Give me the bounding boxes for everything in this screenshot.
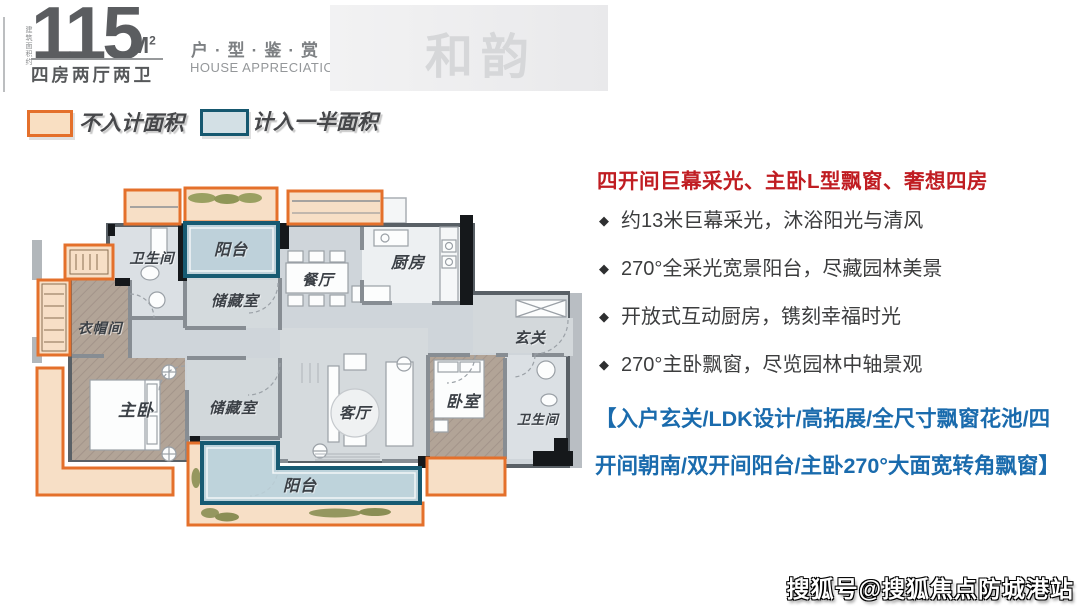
room-label-foyer: 玄关 bbox=[514, 329, 546, 347]
feature-text: 约13米巨幕采光，沐浴阳光与清风 bbox=[621, 210, 923, 232]
feature-list: ◆约13米巨幕采光，沐浴阳光与清风 ◆270°全采光宽景阳台，尽藏园林美景 ◆开… bbox=[599, 208, 1064, 400]
room-label-storage2: 储藏室 bbox=[209, 399, 259, 417]
room-label-balcony-top: 阳台 bbox=[214, 241, 248, 259]
series-title: 户·型·鉴·赏 bbox=[191, 36, 325, 61]
diamond-icon: ◆ bbox=[599, 309, 609, 324]
edge-tick bbox=[3, 17, 5, 92]
diamond-icon: ◆ bbox=[599, 357, 609, 372]
feature-text: 开放式互动厨房，镌刻幸福时光 bbox=[621, 306, 901, 328]
room-label-kitchen: 厨房 bbox=[390, 254, 426, 272]
footer-credit: 搜狐号@搜狐焦点防城港站 bbox=[787, 570, 1074, 604]
legend-label-orange: 不入计面积 bbox=[79, 107, 184, 137]
room-label-dining: 餐厅 bbox=[302, 272, 336, 289]
headline: 四开间巨幕采光、主卧L型飘窗、奢想四房 bbox=[597, 164, 1067, 194]
series-subtitle: HOUSE APPRECIATION bbox=[190, 60, 344, 75]
area-unit-sup: 2 bbox=[149, 33, 156, 47]
watermark-panel: 和韵 bbox=[330, 5, 608, 91]
title-rule bbox=[31, 58, 163, 60]
room-label-bath2: 卫生间 bbox=[517, 412, 560, 427]
diamond-icon: ◆ bbox=[599, 213, 609, 228]
feature-item: ◆约13米巨幕采光，沐浴阳光与清风 bbox=[599, 208, 1064, 234]
room-label-master: 主卧 bbox=[118, 401, 155, 420]
feature-item: ◆270°全采光宽景阳台，尽藏园林美景 bbox=[599, 256, 1064, 282]
room-label-living: 客厅 bbox=[339, 404, 373, 422]
page-root: 建筑面积约 115 M2 四房两厅两卫 户·型·鉴·赏 HOUSE APPREC… bbox=[0, 0, 1080, 608]
room-label-bed2: 卧室 bbox=[446, 393, 482, 411]
summary-text: 【入户玄关/LDK设计/高拓展/全尺寸飘窗花池/四开间朝南/双开间阳台/主卧27… bbox=[595, 396, 1063, 490]
entry-door-gap bbox=[564, 318, 573, 356]
feature-item: ◆开放式互动厨房，镌刻幸福时光 bbox=[599, 304, 1064, 330]
room-label-storage1: 储藏室 bbox=[211, 292, 261, 310]
layout-label: 四房两厅两卫 bbox=[31, 62, 154, 87]
watermark-text: 和韵 bbox=[425, 17, 537, 87]
feature-text: 270°全采光宽景阳台，尽藏园林美景 bbox=[621, 258, 942, 280]
room-label-cloak: 衣帽间 bbox=[78, 320, 124, 336]
feature-text: 270°主卧飘窗，尽览园林中轴景观 bbox=[621, 354, 922, 376]
feature-item: ◆270°主卧飘窗，尽览园林中轴景观 bbox=[599, 352, 1064, 378]
area-unit-letter: M bbox=[130, 32, 149, 58]
room-label-bath1: 卫生间 bbox=[130, 250, 176, 266]
floor-plan: 卫生间 阳台 储藏室 餐厅 厨房 衣帽间 玄关 主卧 储藏室 客厅 卧室 卫生间… bbox=[30, 168, 595, 548]
legend-swatch-orange bbox=[27, 110, 73, 137]
diamond-icon: ◆ bbox=[599, 261, 609, 276]
legend-label-blue: 计入一半面积 bbox=[252, 106, 378, 136]
room-label-balcony-bottom: 阳台 bbox=[283, 477, 317, 495]
area-unit: M2 bbox=[130, 32, 156, 59]
legend-swatch-blue bbox=[200, 109, 249, 136]
